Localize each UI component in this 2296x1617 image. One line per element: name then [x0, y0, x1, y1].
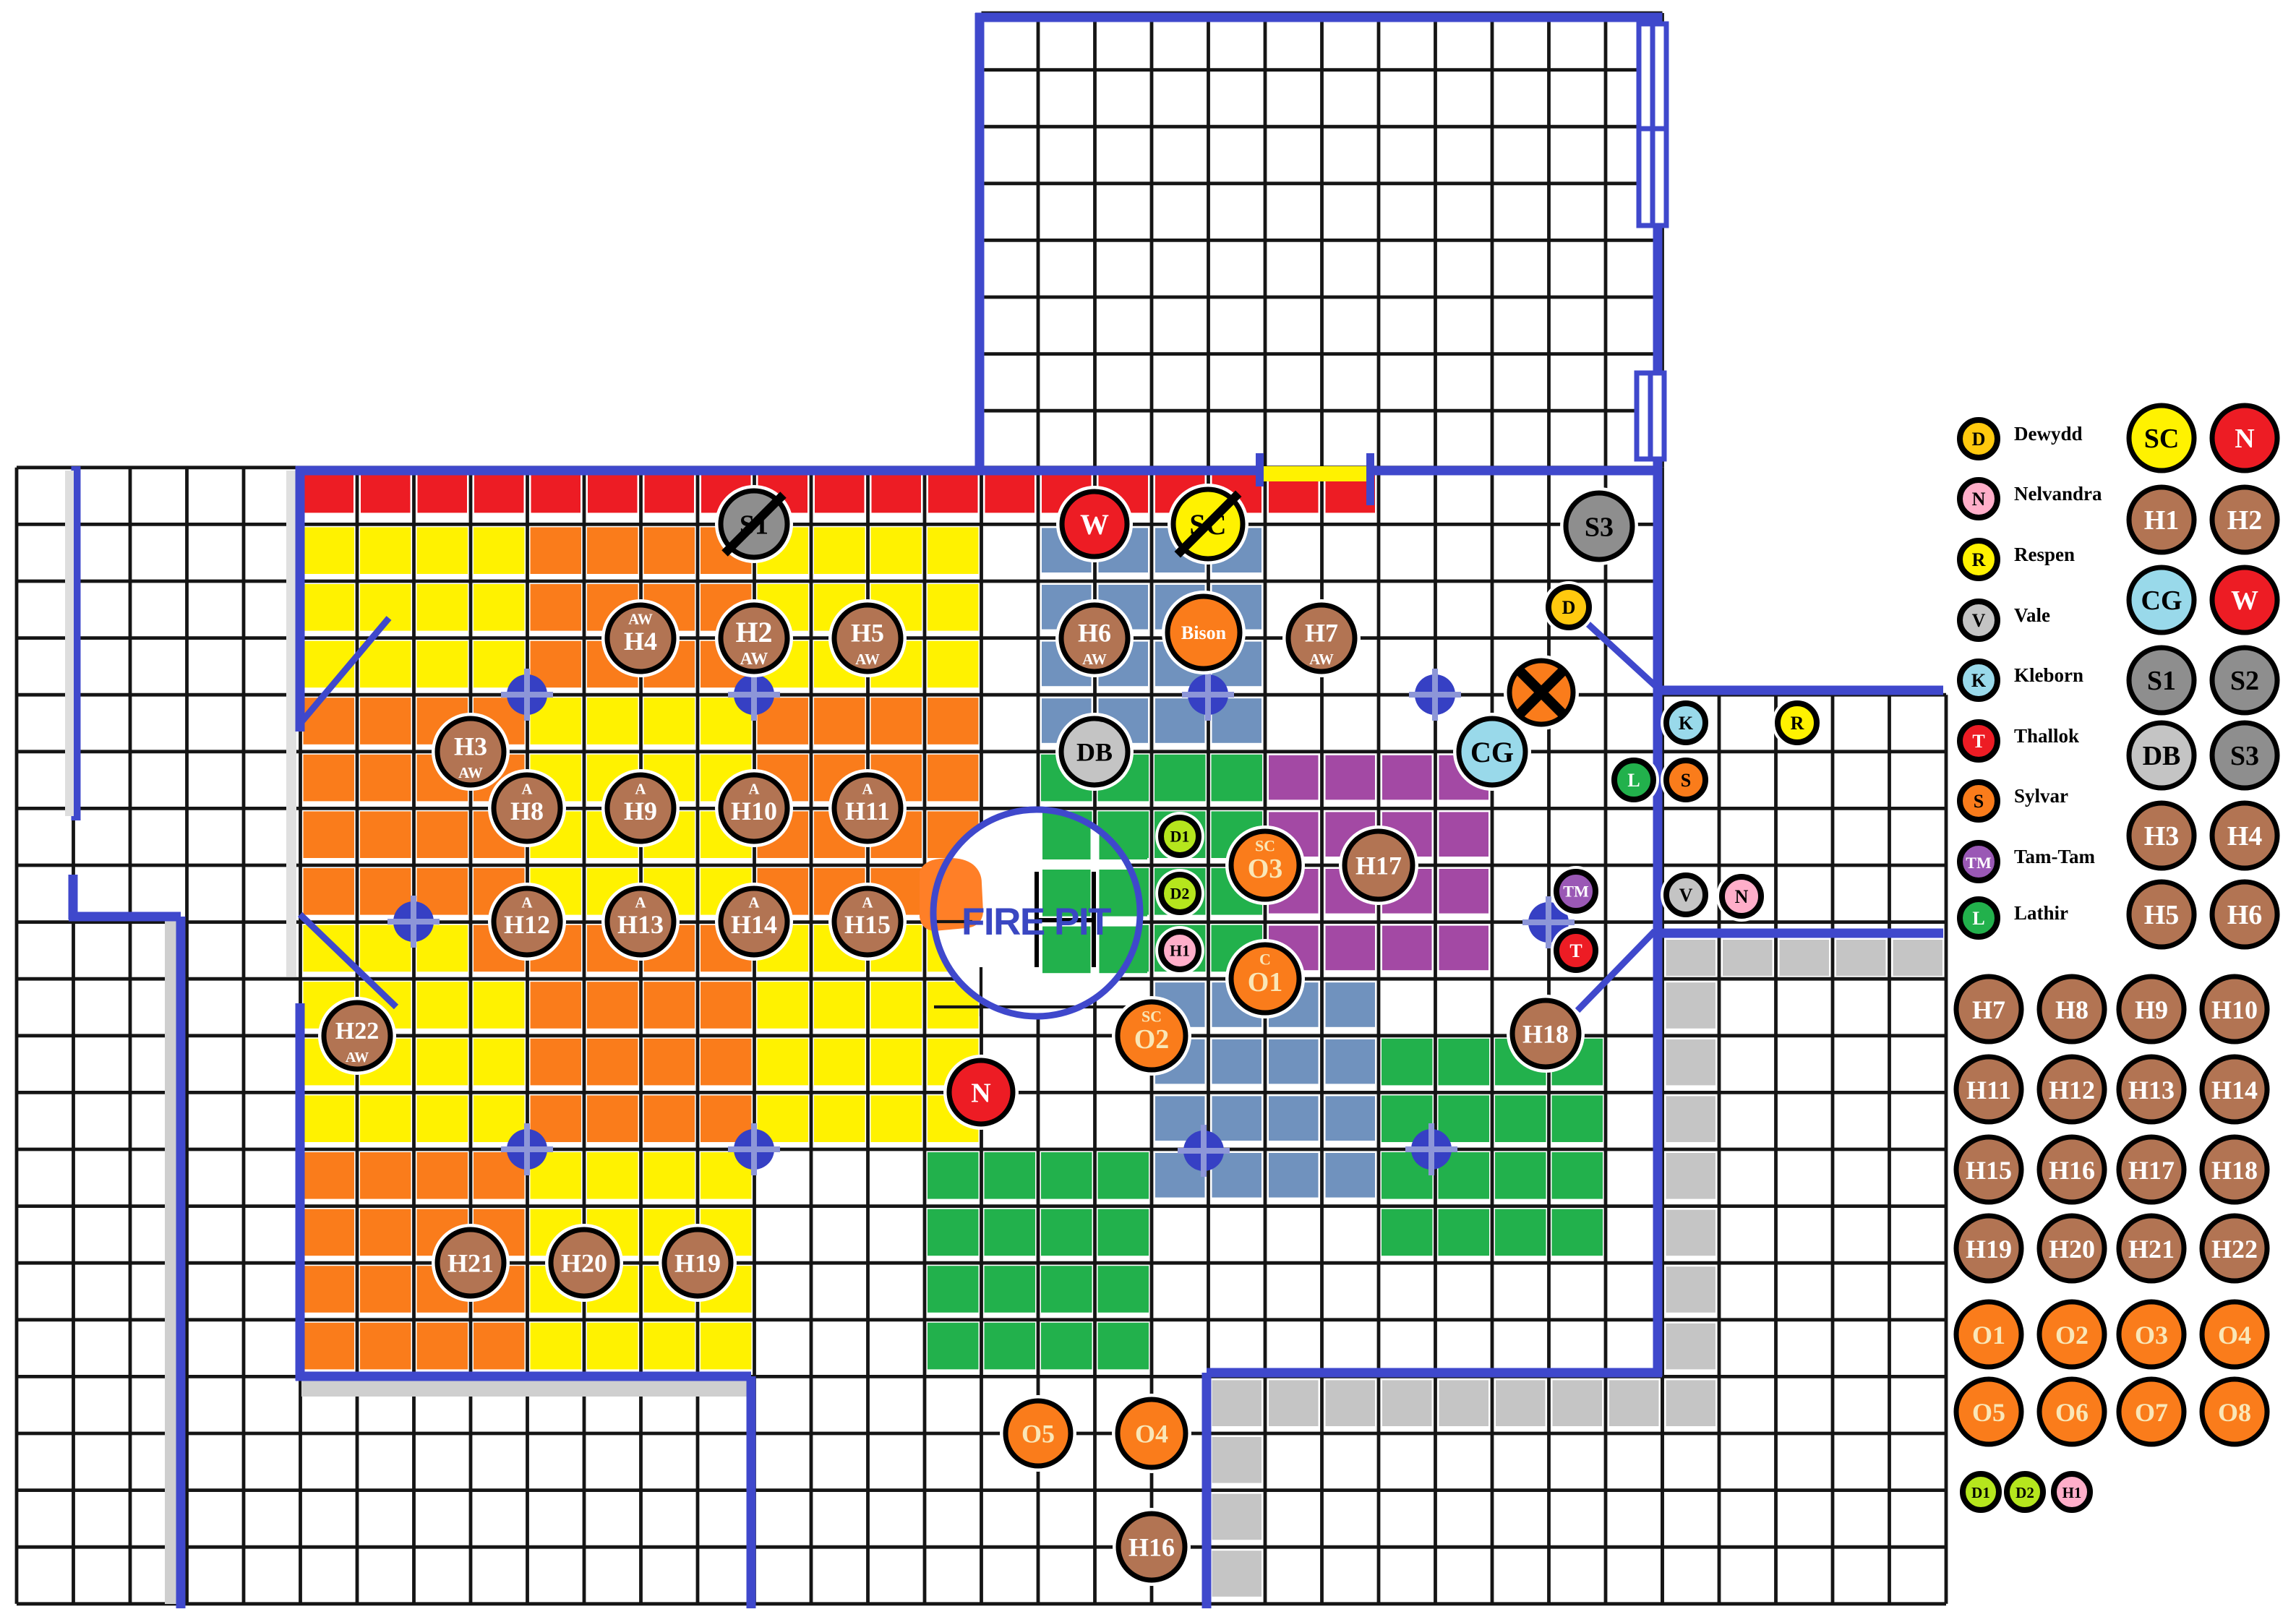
svg-text:H2: H2: [735, 616, 772, 648]
svg-text:A: A: [748, 781, 760, 798]
svg-text:A: A: [862, 781, 873, 798]
svg-text:O4: O4: [2218, 1321, 2251, 1350]
svg-text:N: N: [1972, 489, 1986, 510]
svg-text:H7: H7: [1972, 995, 2005, 1024]
svg-text:H11: H11: [1966, 1076, 2011, 1105]
svg-text:O5: O5: [1021, 1420, 1055, 1449]
svg-text:Dewydd: Dewydd: [2014, 423, 2083, 445]
svg-text:Thallok: Thallok: [2014, 725, 2079, 747]
svg-text:D2: D2: [2016, 1484, 2034, 1501]
svg-text:A: A: [635, 894, 646, 912]
svg-text:L: L: [1972, 908, 1984, 929]
svg-text:TM: TM: [1966, 854, 1992, 872]
svg-text:H11: H11: [845, 797, 890, 825]
svg-text:CG: CG: [1470, 736, 1514, 768]
svg-text:S1: S1: [2147, 666, 2176, 696]
svg-text:H22: H22: [2211, 1235, 2258, 1264]
svg-text:D1: D1: [1170, 828, 1190, 846]
svg-text:AW: AW: [1082, 651, 1107, 668]
svg-text:T: T: [1569, 940, 1582, 961]
svg-text:AW: AW: [346, 1050, 369, 1065]
svg-text:A: A: [748, 894, 760, 912]
svg-text:Kleborn: Kleborn: [2014, 664, 2083, 686]
svg-text:H16: H16: [2049, 1156, 2095, 1185]
svg-text:A: A: [521, 894, 533, 912]
svg-text:AW: AW: [1309, 651, 1334, 668]
svg-text:O4: O4: [1135, 1420, 1168, 1449]
svg-text:H13: H13: [617, 910, 664, 939]
svg-text:O6: O6: [2055, 1398, 2089, 1427]
svg-text:V: V: [1972, 610, 1986, 631]
svg-text:R: R: [1972, 549, 1986, 570]
svg-text:H22: H22: [335, 1018, 379, 1045]
svg-text:H4: H4: [624, 627, 657, 656]
svg-text:H12: H12: [504, 910, 550, 939]
svg-text:S: S: [1681, 770, 1691, 791]
svg-text:L: L: [1627, 770, 1640, 791]
svg-text:W: W: [1080, 508, 1109, 541]
svg-text:D: D: [1562, 597, 1576, 618]
svg-text:A: A: [862, 894, 873, 912]
svg-text:O2: O2: [2055, 1321, 2089, 1350]
svg-text:Sylvar: Sylvar: [2014, 785, 2068, 807]
svg-text:H17: H17: [2128, 1156, 2175, 1185]
svg-text:H1: H1: [2062, 1484, 2082, 1501]
svg-text:N: N: [2235, 424, 2254, 454]
svg-text:A: A: [521, 781, 533, 798]
svg-text:H17: H17: [1355, 852, 1402, 880]
svg-text:D2: D2: [1170, 885, 1190, 903]
svg-text:O7: O7: [2135, 1398, 2168, 1427]
svg-text:H18: H18: [2211, 1156, 2258, 1185]
svg-text:O2: O2: [1134, 1024, 1170, 1055]
svg-text:S3: S3: [1585, 512, 1614, 542]
svg-text:H9: H9: [624, 797, 657, 825]
svg-text:Nelvandra: Nelvandra: [2014, 483, 2102, 505]
svg-text:AW: AW: [855, 651, 880, 668]
svg-text:H7: H7: [1305, 618, 1338, 647]
svg-text:O3: O3: [2135, 1321, 2168, 1350]
svg-text:H21: H21: [2128, 1235, 2175, 1264]
svg-text:K: K: [1971, 670, 1987, 691]
svg-text:C: C: [1259, 950, 1271, 968]
svg-text:H13: H13: [2128, 1076, 2175, 1105]
svg-text:H2: H2: [2227, 505, 2263, 536]
svg-text:D1: D1: [1971, 1484, 1990, 1501]
svg-text:S3: S3: [2230, 741, 2259, 771]
svg-text:Lathir: Lathir: [2014, 902, 2068, 924]
svg-text:O1: O1: [1972, 1321, 2005, 1350]
svg-text:DB: DB: [2143, 741, 2181, 771]
svg-text:H1: H1: [2144, 505, 2180, 536]
svg-text:K: K: [1679, 713, 1694, 734]
svg-text:H19: H19: [674, 1249, 721, 1278]
svg-text:H3: H3: [2144, 821, 2180, 852]
svg-text:H3: H3: [454, 732, 487, 760]
svg-text:W: W: [2231, 586, 2258, 616]
svg-text:AW: AW: [628, 611, 653, 628]
svg-text:A: A: [635, 781, 646, 798]
svg-text:Bison: Bison: [1181, 622, 1227, 643]
svg-text:O5: O5: [1972, 1398, 2005, 1427]
svg-text:DB: DB: [1076, 738, 1113, 767]
svg-text:O3: O3: [1248, 854, 1283, 884]
svg-text:H10: H10: [731, 797, 777, 825]
svg-text:H12: H12: [2049, 1076, 2095, 1105]
svg-text:H19: H19: [1966, 1235, 2012, 1264]
svg-text:S: S: [1974, 791, 1984, 812]
svg-text:H1: H1: [1170, 942, 1190, 960]
svg-text:H9: H9: [2135, 995, 2168, 1024]
svg-text:H14: H14: [731, 910, 777, 939]
svg-text:O1: O1: [1248, 967, 1283, 998]
svg-text:Vale: Vale: [2014, 604, 2050, 626]
svg-text:H15: H15: [1966, 1156, 2012, 1185]
svg-text:FIRE PIT: FIRE PIT: [961, 901, 1111, 943]
svg-text:H8: H8: [510, 797, 544, 825]
svg-text:H21: H21: [447, 1249, 494, 1278]
svg-text:D: D: [1972, 429, 1986, 450]
svg-text:SC: SC: [1141, 1007, 1162, 1025]
svg-text:H20: H20: [2049, 1235, 2095, 1264]
svg-text:TM: TM: [1563, 883, 1589, 901]
svg-text:H15: H15: [844, 910, 891, 939]
svg-text:SC: SC: [1255, 836, 1275, 854]
svg-text:O8: O8: [2218, 1398, 2251, 1427]
svg-text:H5: H5: [851, 618, 884, 647]
svg-text:AW: AW: [458, 764, 483, 781]
svg-text:Tam-Tam: Tam-Tam: [2014, 846, 2096, 867]
svg-text:Respen: Respen: [2014, 544, 2075, 565]
svg-text:N: N: [971, 1078, 990, 1108]
svg-text:H5: H5: [2144, 900, 2180, 930]
svg-text:V: V: [1679, 885, 1693, 906]
svg-text:S2: S2: [2230, 666, 2259, 696]
svg-text:H14: H14: [2211, 1076, 2258, 1105]
svg-text:R: R: [1791, 713, 1804, 734]
svg-text:T: T: [1972, 731, 1984, 752]
svg-text:SC: SC: [2144, 424, 2180, 454]
svg-text:H10: H10: [2211, 995, 2258, 1024]
svg-text:H8: H8: [2055, 995, 2089, 1024]
svg-text:H4: H4: [2227, 821, 2263, 852]
svg-text:H16: H16: [1128, 1533, 1175, 1562]
svg-text:CG: CG: [2141, 586, 2183, 616]
svg-text:H20: H20: [561, 1249, 607, 1278]
svg-text:H18: H18: [1522, 1020, 1569, 1049]
svg-text:N: N: [1735, 886, 1749, 907]
svg-text:H6: H6: [2227, 900, 2263, 930]
svg-text:AW: AW: [740, 650, 768, 669]
svg-text:H6: H6: [1078, 618, 1111, 647]
